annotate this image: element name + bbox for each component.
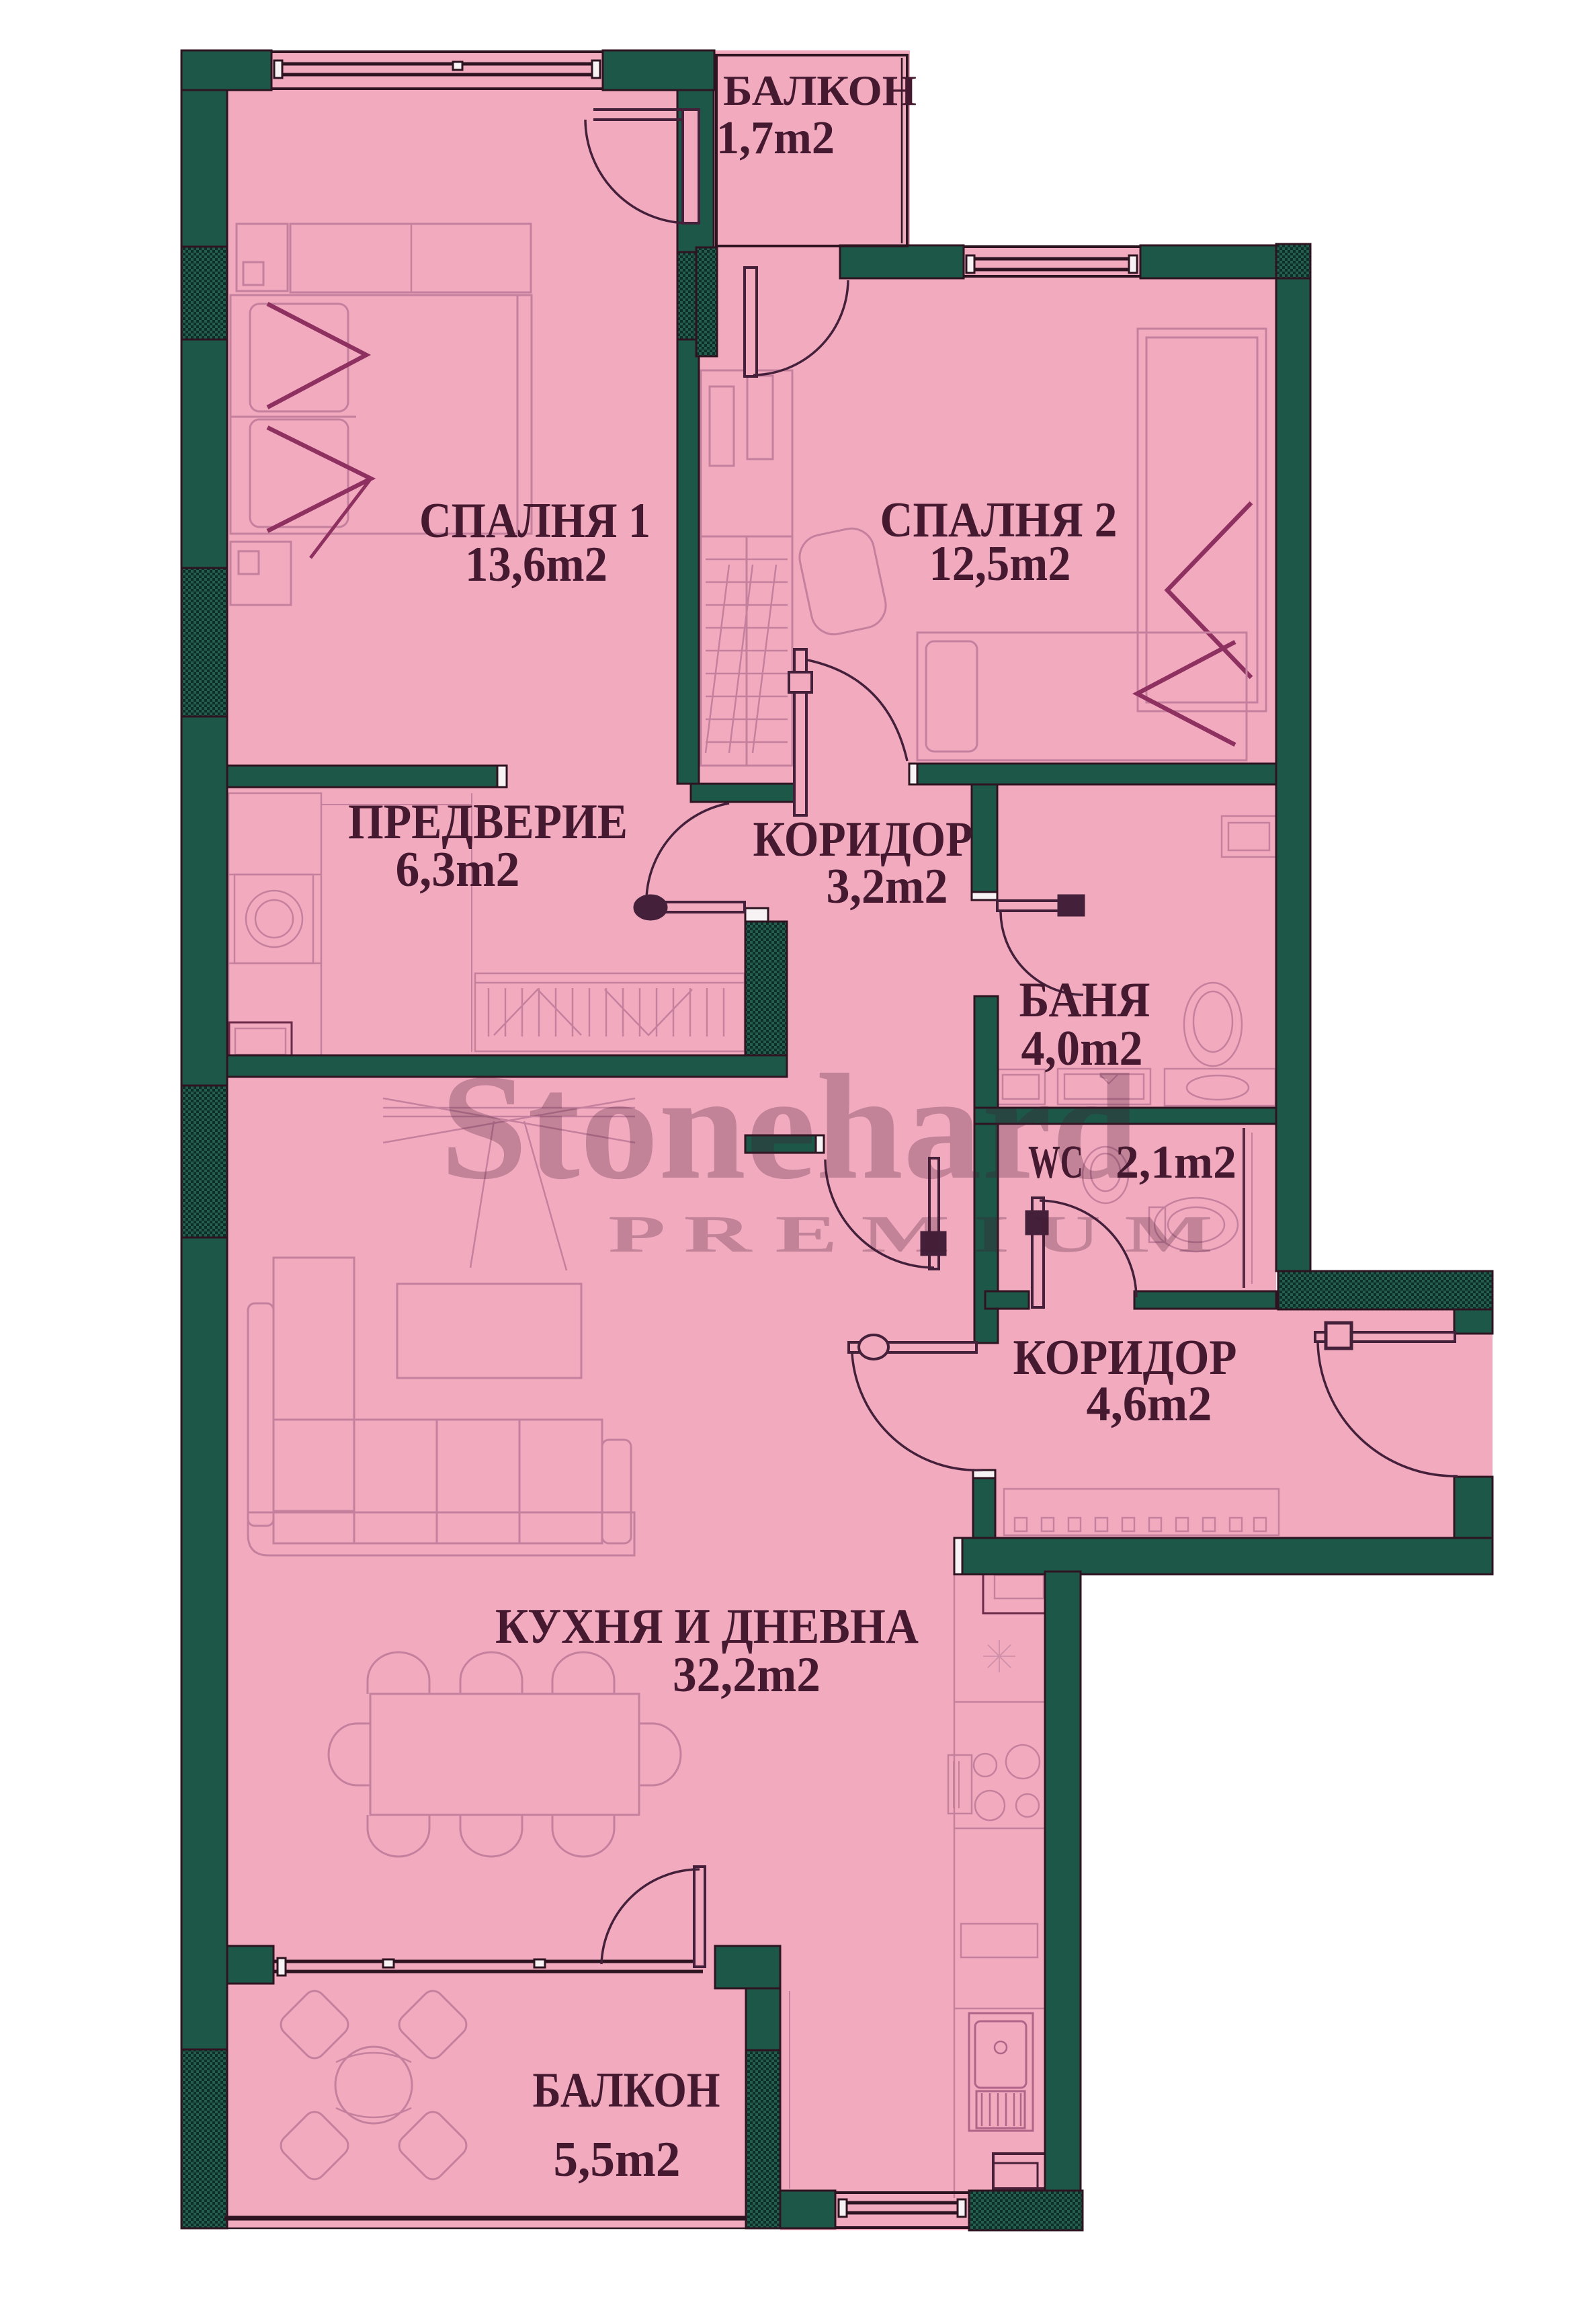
svg-text:БАЛКОН: БАЛКОН [533, 2063, 720, 2118]
svg-text:КУХНЯ И ДНЕВНА: КУХНЯ И ДНЕВНА [495, 1599, 919, 1654]
svg-text:БАНЯ: БАНЯ [1019, 973, 1150, 1028]
svg-text:3,2m2: 3,2m2 [827, 859, 948, 914]
svg-text:13,6m2: 13,6m2 [465, 537, 607, 592]
svg-text:ПРЕДВЕРИЕ: ПРЕДВЕРИЕ [348, 795, 628, 850]
svg-text:1,7m2: 1,7m2 [716, 112, 835, 164]
svg-text:4,6m2: 4,6m2 [1087, 1377, 1212, 1432]
svg-text:5,5m2: 5,5m2 [554, 2132, 681, 2187]
svg-text:БАЛКОН: БАЛКОН [723, 67, 917, 114]
svg-text:4,0m2: 4,0m2 [1021, 1021, 1143, 1076]
svg-text:12,5m2: 12,5m2 [929, 536, 1071, 592]
svg-text:6,3m2: 6,3m2 [396, 842, 520, 897]
svg-text:2,1m2: 2,1m2 [1116, 1137, 1236, 1188]
svg-text:WC: WC [1028, 1137, 1083, 1188]
svg-text:32,2m2: 32,2m2 [673, 1647, 821, 1703]
svg-text:P R E M I U M: P R E M I U M [608, 1205, 1213, 1263]
